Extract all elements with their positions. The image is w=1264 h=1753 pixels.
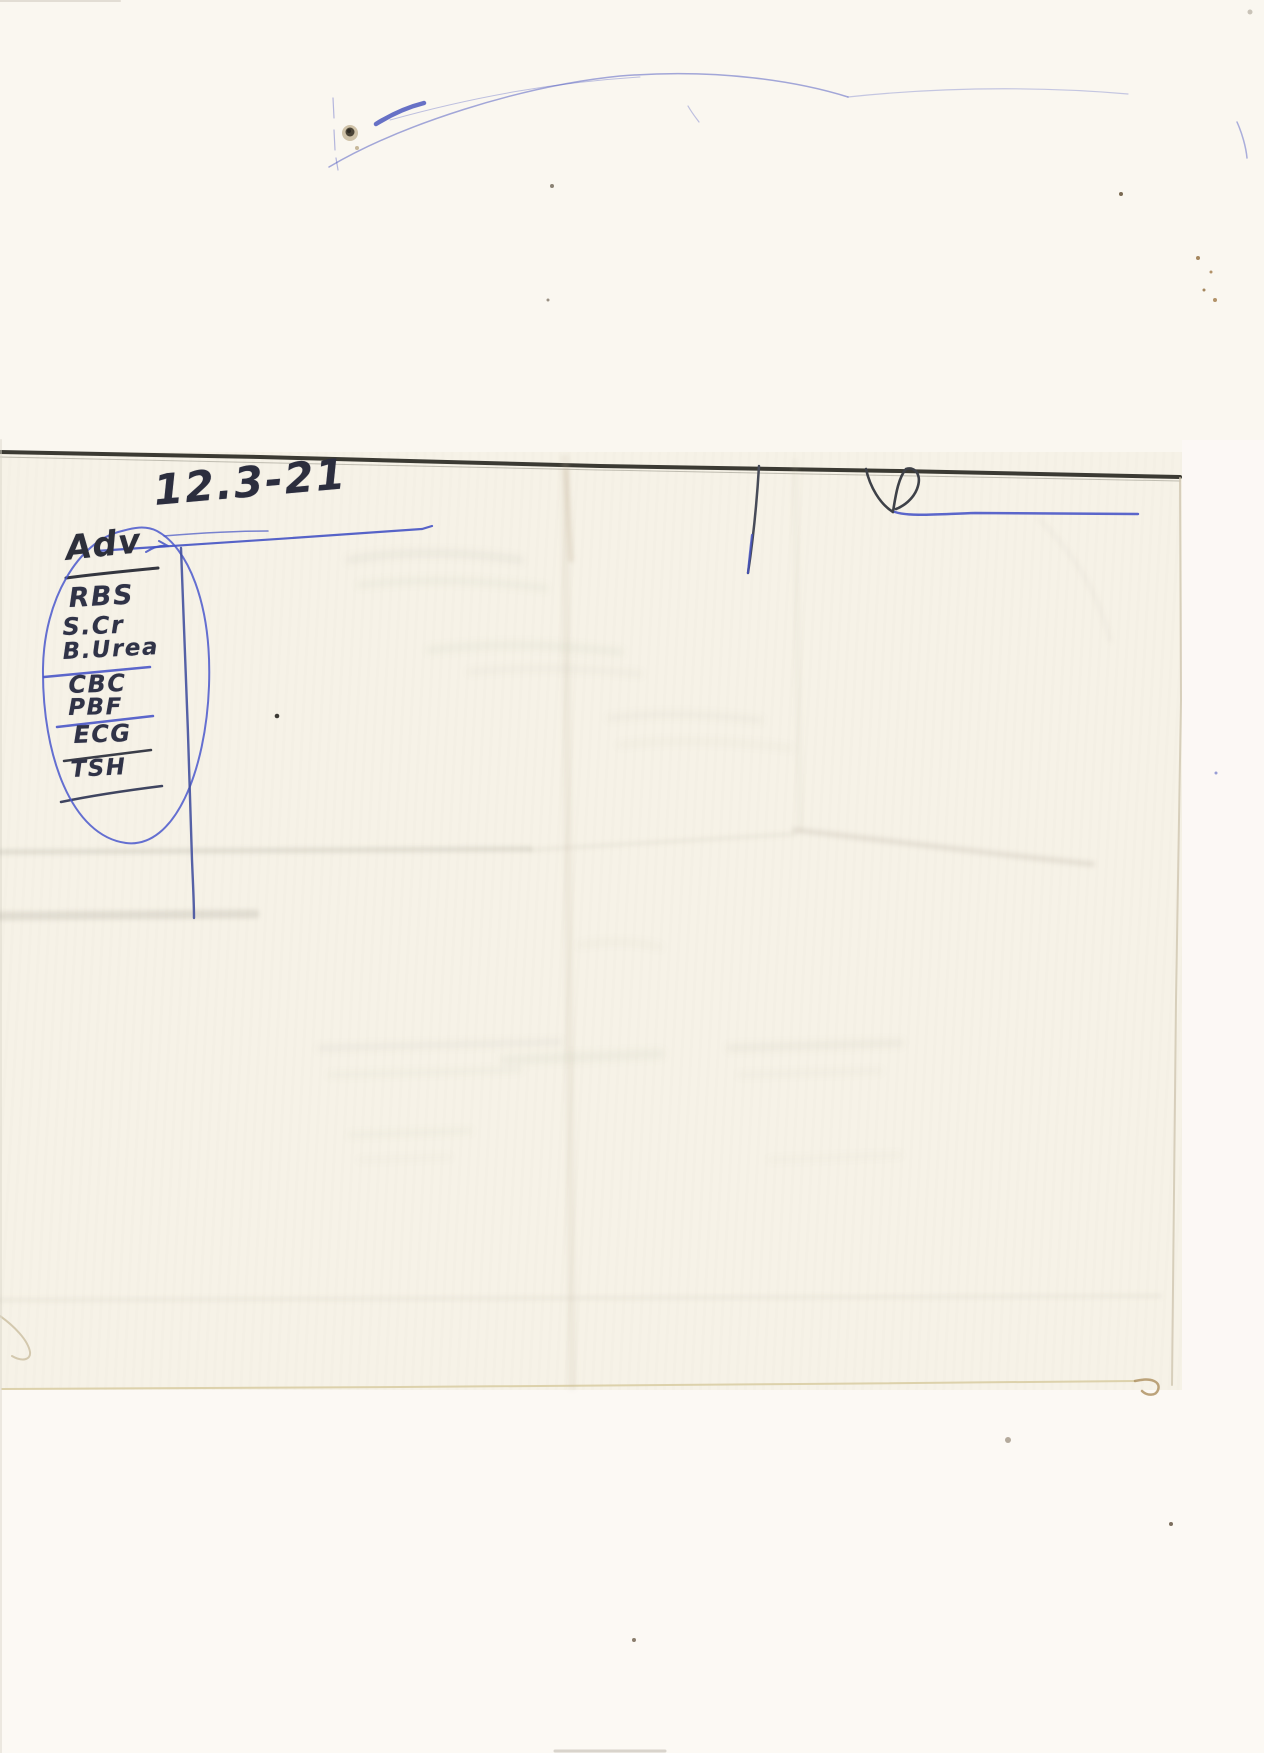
speck <box>1119 192 1123 196</box>
test-item-ecg: ECG <box>73 721 132 747</box>
test-item-rbs: RBS <box>68 582 135 612</box>
scanned-document: 12.3-21 Adv RBS S.Cr B.Urea CBC PBF ECG … <box>0 0 1264 1753</box>
paper-right-edge <box>1172 478 1181 1385</box>
ghost-impressions <box>320 553 900 1160</box>
speck <box>1248 10 1253 15</box>
signature-rule-line <box>895 512 1138 515</box>
speck <box>355 146 359 150</box>
ink-and-marks-layer <box>0 0 1264 1753</box>
paper-edges <box>0 1 1181 1753</box>
signature-mark <box>748 466 1138 573</box>
speck <box>1213 298 1217 302</box>
handwritten-heading-adv: Adv <box>64 524 143 566</box>
test-item-pbf: PBF <box>68 696 123 720</box>
speck <box>1196 256 1200 260</box>
top-scribble <box>329 74 1247 170</box>
ink-dot-center <box>347 129 351 133</box>
specks <box>275 10 1253 1643</box>
speck <box>547 299 550 302</box>
speck <box>275 714 280 719</box>
speck <box>550 184 554 188</box>
fold-creases <box>0 458 1160 1386</box>
test-item-tsh: TSH <box>70 756 127 782</box>
speck <box>1169 1522 1173 1526</box>
test-item-scr: S.Cr <box>62 613 125 639</box>
speck <box>1203 289 1206 292</box>
bottom-edge-curl <box>1135 1380 1159 1395</box>
dog-ear-corner <box>0 1316 30 1359</box>
speck <box>1210 271 1213 274</box>
adv-rule-line <box>96 526 432 551</box>
test-item-cbc: CBC <box>68 671 127 697</box>
speck <box>1215 772 1218 775</box>
vertical-line <box>181 548 194 918</box>
speck <box>632 1638 636 1642</box>
test-item-burea: B.Urea <box>62 636 159 664</box>
speck <box>1005 1437 1011 1443</box>
date-underline <box>164 531 268 536</box>
underline-after-tsh <box>61 786 162 802</box>
adv-underline <box>66 568 158 578</box>
